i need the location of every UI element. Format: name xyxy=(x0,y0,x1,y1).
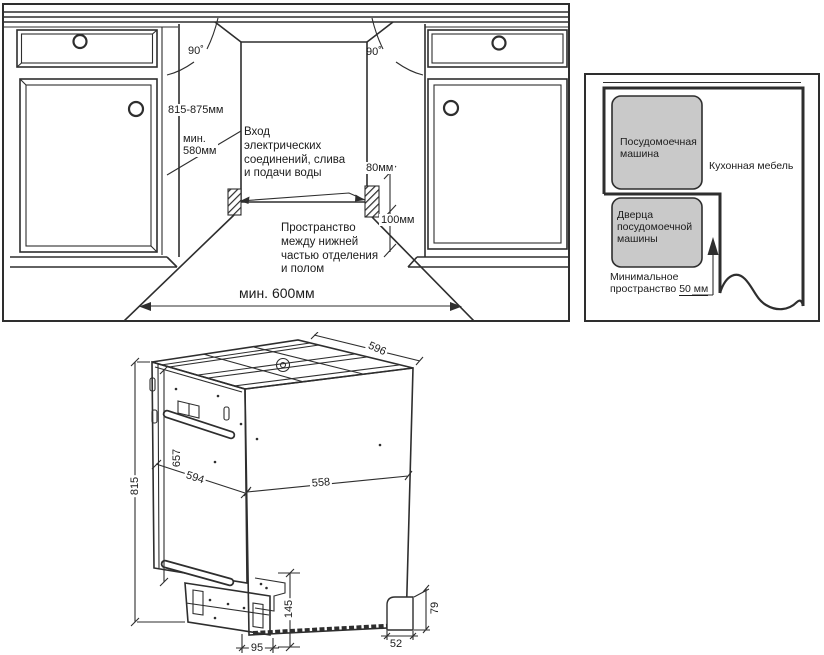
min-depth-label: мин. 580мм xyxy=(181,134,218,157)
dishwasher-dimension-drawing: 596 815 657 594 558 145 95 52 79 xyxy=(118,332,458,655)
right-cabinet xyxy=(408,24,568,267)
torn-edge-wave xyxy=(720,275,803,309)
angle-left-label: 90˚ xyxy=(188,45,204,57)
countertop xyxy=(4,12,568,27)
dim-657-line xyxy=(160,366,168,586)
niche-installation-panel: 90˚ 90˚ 815-875мм мин. 580мм Вход электр… xyxy=(2,3,570,322)
machine-front-face xyxy=(150,362,258,583)
inlet-hatch-left xyxy=(228,189,241,215)
min-space-prefix: пространство xyxy=(610,283,679,295)
dim-79-label: 79 xyxy=(429,602,441,614)
angle-arcs xyxy=(167,18,423,75)
dim-657-label: 657 xyxy=(171,449,183,467)
manual-page: { "colors": { "line": "#2e2e2e", "box_gr… xyxy=(0,0,824,655)
min-width-label: мин. 600мм xyxy=(237,286,317,302)
dim-80-label: 80мм xyxy=(364,162,395,174)
dim-95-label: 95 xyxy=(249,642,265,654)
min-space-value: 50 мм xyxy=(679,283,708,296)
inlet-note: Вход электрических соединений, слива и п… xyxy=(244,126,345,181)
top-view-panel: Посудомоечная машина Дверца посудомоечно… xyxy=(584,73,820,322)
machine-side-face xyxy=(245,368,413,635)
dim-145-label: 145 xyxy=(283,598,295,620)
dim-52-label: 52 xyxy=(390,638,402,650)
hinge-mark xyxy=(224,407,229,420)
rear-foot xyxy=(387,597,413,630)
bottom-space-dim-line xyxy=(384,166,396,257)
height-range-label: 815-875мм xyxy=(166,104,226,116)
dim-558-label: 558 xyxy=(309,476,332,490)
min-space-label-line1: Минимальное xyxy=(610,271,678,283)
dim-79-line xyxy=(414,585,430,633)
dishwasher-label: Посудомоечная машина xyxy=(620,136,697,160)
dim-100-label: 100мм xyxy=(379,214,416,226)
door-label: Дверца посудомоечной машины xyxy=(617,209,692,245)
inlet-hatch-right xyxy=(365,186,379,217)
left-cabinet xyxy=(10,24,179,267)
floor-space-note: Пространство между нижней частью отделен… xyxy=(281,222,378,277)
angle-right-label: 90˚ xyxy=(366,46,382,58)
furniture-label: Кухонная мебель xyxy=(709,160,793,172)
inlet-arrows xyxy=(240,193,365,201)
dim-815-label: 815 xyxy=(129,475,141,497)
min-space-label-line2: пространство 50 мм xyxy=(610,283,708,295)
